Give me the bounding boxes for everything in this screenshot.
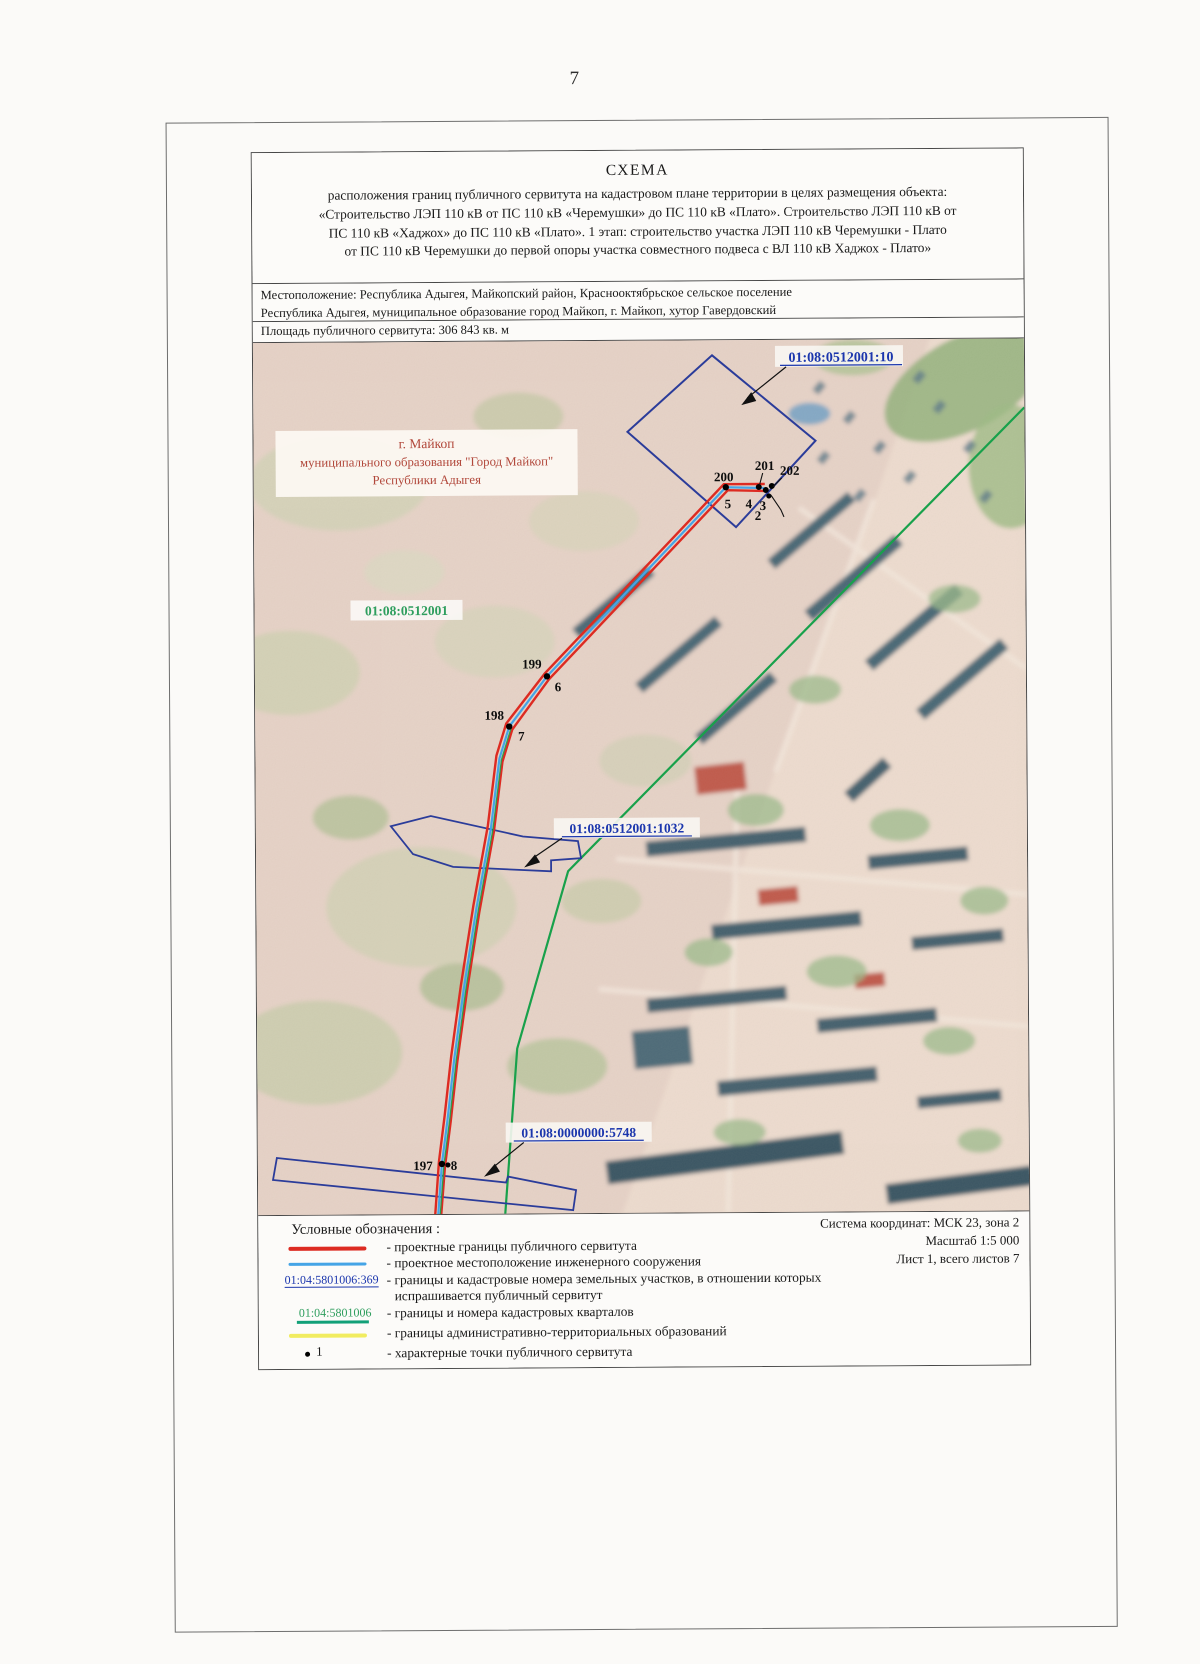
legend-item-text: - границы административно-территориальны… bbox=[387, 1323, 727, 1341]
point-201-label: 201 bbox=[755, 458, 775, 473]
legend-item-text: испрашивается публичный сервитут bbox=[395, 1287, 603, 1304]
yellow-line-swatch bbox=[289, 1333, 367, 1337]
coordinate-system: Система координат: МСК 23, зона 2 bbox=[820, 1213, 1019, 1232]
point-199-dot bbox=[544, 673, 550, 679]
blue-line-swatch bbox=[289, 1262, 367, 1265]
point-dot bbox=[763, 487, 769, 493]
legend-title: Условные обозначения : bbox=[291, 1221, 440, 1239]
schema-heading: СХЕМА bbox=[252, 159, 1023, 182]
location-block: Местоположение: Республика Адыгея, Майко… bbox=[253, 279, 1024, 322]
point-6-label: 6 bbox=[555, 679, 562, 694]
area-label: Площадь публичного сервитута: 306 843 кв… bbox=[261, 319, 1024, 339]
point-200-label: 200 bbox=[714, 469, 734, 484]
red-line-swatch bbox=[288, 1246, 366, 1250]
point-197-dot bbox=[439, 1161, 445, 1167]
territory-line1: г. Майкоп bbox=[399, 436, 455, 451]
map-canvas: 01:08:0512001:10 01:08:0512001 г. Майкоп… bbox=[253, 338, 1029, 1216]
point-202-label: 202 bbox=[780, 463, 800, 478]
point-dot bbox=[756, 484, 762, 490]
territory-line3: Республики Адыгея bbox=[372, 473, 481, 488]
green-line-swatch bbox=[297, 1320, 369, 1323]
point-2-label: 2 bbox=[755, 508, 762, 523]
title-block: СХЕМА расположения границ публичного сер… bbox=[252, 148, 1024, 284]
legend-item-text: - характерные точки публичного сервитута bbox=[387, 1344, 632, 1361]
quarter-callout: 01:08:0512001 bbox=[350, 600, 462, 621]
legend-item-text: - проектное местоположение инженерного с… bbox=[386, 1253, 701, 1271]
point-200-dot bbox=[723, 484, 729, 490]
legend-block: Условные обозначения : - проектные грани… bbox=[258, 1211, 1030, 1369]
point-5-label: 5 bbox=[725, 496, 732, 511]
point-dot-swatch bbox=[305, 1352, 310, 1357]
point-number-swatch: 1 bbox=[316, 1344, 323, 1360]
point-dot bbox=[766, 493, 771, 498]
map-scale: Масштаб 1:5 000 bbox=[820, 1231, 1019, 1250]
territory-label-box: г. Майкоп муниципального образования "Го… bbox=[275, 429, 577, 497]
point-198-dot bbox=[506, 723, 512, 729]
territory-line2: муниципального образования "Город Майкоп… bbox=[300, 454, 553, 470]
point-7-label: 7 bbox=[518, 728, 525, 743]
point-197-label: 197 bbox=[413, 1158, 433, 1173]
title-line: от ПС 110 кВ Черемушки до первой опоры у… bbox=[252, 239, 1023, 263]
legend-item-text: - границы и номера кадастровых кварталов bbox=[387, 1304, 634, 1322]
cadastral-map: 01:08:0512001:10 01:08:0512001 г. Майкоп… bbox=[253, 338, 1029, 1216]
point-4-label: 4 bbox=[746, 496, 753, 511]
sheet-number: Лист 1, всего листов 7 bbox=[820, 1249, 1019, 1268]
parcel-1032-label: 01:08:0512001:1032 bbox=[569, 820, 684, 836]
page-number: 7 bbox=[561, 68, 587, 90]
parcel-5748-label: 01:08:0000000:5748 bbox=[521, 1125, 636, 1141]
quarter-number-swatch: 01:04:5801006 bbox=[299, 1305, 372, 1319]
sheet: 7 СХЕМА расположения границ публичного с… bbox=[0, 0, 1200, 1664]
parcel-10-label: 01:08:0512001:10 bbox=[788, 350, 893, 366]
schema-table: СХЕМА расположения границ публичного сер… bbox=[251, 147, 1031, 1370]
point-199-label: 199 bbox=[522, 656, 542, 671]
quarter-label: 01:08:0512001 bbox=[365, 603, 449, 619]
legend-item-text: - границы и кадастровые номера земельных… bbox=[387, 1270, 822, 1289]
scanned-document-page: 7 СХЕМА расположения границ публичного с… bbox=[0, 0, 1200, 1664]
map-info-block: Система координат: МСК 23, зона 2 Масшта… bbox=[820, 1213, 1020, 1268]
point-198-label: 198 bbox=[484, 708, 504, 723]
cadastral-number-swatch: 01:04:5801006:369 bbox=[285, 1272, 379, 1288]
legend-item-text: - проектные границы публичного сервитута bbox=[386, 1238, 637, 1256]
point-8-label: 8 bbox=[451, 1158, 458, 1173]
